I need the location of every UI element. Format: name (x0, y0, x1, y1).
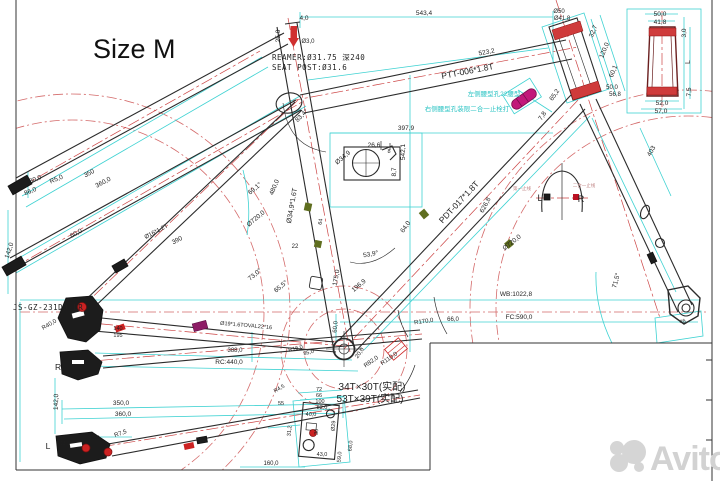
dim-label: 175,0 (332, 269, 342, 287)
dim-label: 53T×39T(实配) (337, 392, 404, 405)
dim-label: L (537, 193, 542, 203)
head-angle-arc (596, 272, 640, 386)
fork-boss (639, 204, 652, 220)
dim-label: 350 (83, 168, 96, 179)
chainstay-r-yoke (60, 350, 102, 380)
dim-label: R7,5 (114, 429, 129, 439)
dim-label: R5,0 (49, 174, 65, 186)
dim-label: 140 (113, 326, 122, 332)
dim-label: REAMER:Ø31.75 深240 (272, 53, 365, 62)
dim-label: 196,9 (351, 278, 368, 294)
dim-label: Ø720,0 (502, 233, 523, 252)
dim-label: 46 (679, 318, 686, 325)
dim-label: 7,5 (686, 87, 693, 96)
headtube-detail-tube (647, 27, 678, 96)
dim-label: 360,0 (115, 411, 132, 418)
avito-watermark-text: Avito (650, 440, 720, 478)
dim-label: 523,2 (478, 47, 496, 57)
dim-label: 82,0 (317, 405, 328, 411)
dim-label: Ø50 (553, 9, 565, 15)
red-bolt (104, 448, 112, 456)
dim-label: 403 (646, 144, 658, 157)
down-tube (353, 109, 585, 354)
headset-top-band (552, 21, 583, 40)
dim-label: Ø34,9 (334, 149, 352, 166)
avito-logo-icon (610, 454, 628, 472)
dim-label: 73,0° (246, 266, 263, 282)
magenta-fitting (192, 320, 208, 331)
dim-label: 20,0 (354, 346, 366, 360)
frame-layer (10, 0, 712, 481)
dim-label: 43,0 (317, 452, 328, 458)
seat-tube (277, 27, 334, 351)
dim-label: 85,0 (303, 349, 315, 358)
dim-label: Ø3,0 (301, 39, 315, 45)
dim-label: 二合一止线 (573, 182, 596, 189)
dim-label: 8,7 (391, 167, 398, 176)
dim-label: 64,0 (399, 220, 412, 235)
dim-label: 80,0 (88, 436, 100, 442)
dim-label: 55 (278, 401, 284, 407)
dropout-dim-box (655, 311, 703, 343)
dim-label: 65,2 (548, 88, 561, 103)
dim-label: R82,0 (363, 355, 380, 369)
dim-label: 390 (171, 235, 184, 246)
dim-label: 68,0 (348, 440, 355, 451)
dim-label: FC:590,0 (506, 314, 533, 321)
dim-label: Ø29 (331, 420, 338, 431)
avito-logo-icon (634, 462, 644, 472)
front-rim-circle (496, 116, 720, 481)
dim-label: 64 (318, 218, 325, 225)
dim-label: 53,9° (362, 249, 379, 260)
dim-label: 120,0 (598, 41, 611, 59)
dim-label: 41,8 (654, 19, 667, 26)
dim-label: R4,5 (273, 384, 286, 395)
page-title: Size M (93, 34, 176, 64)
dim-label: 626,8 (479, 196, 493, 214)
dim-label: 50,0 (606, 85, 618, 91)
dim-label: 195 (113, 333, 122, 339)
dim-label: 56,8 (609, 92, 621, 98)
dim-label: 34T×30T(实配) (339, 380, 406, 393)
chainstay-r-axis (80, 334, 422, 362)
dim-label: 142,0 (4, 241, 16, 259)
black-parts-layer (2, 175, 657, 464)
dim-label: 350,0 (113, 400, 130, 407)
dim-label: 13,5 (61, 435, 68, 446)
dim-label: L (46, 441, 51, 451)
dim-label: 66,0 (447, 317, 459, 323)
dim-label: 40,0 (306, 412, 317, 418)
dim-label: 22 (292, 244, 299, 250)
stay-b-cap (2, 256, 26, 276)
dim-label: 第一止线 (513, 185, 531, 192)
dim-label: R (578, 194, 585, 204)
dim-label: 142,0 (53, 393, 61, 410)
cad-drawing: Size M 4,0543,425,0Ø3,0REAMER:Ø31.75 深24… (0, 0, 720, 481)
dim-label: 57,0 (655, 108, 668, 115)
dim-label: 60,1 (608, 64, 619, 79)
dim-label: SEAT POST:Ø31.6 (272, 63, 347, 72)
dim-label: PDT-017*1.8T (437, 179, 481, 225)
stay-fitting (112, 259, 128, 273)
avito-watermark: Avito (610, 440, 720, 478)
dim-label: 388,0 (227, 348, 243, 354)
dim-label: 32,7 (588, 24, 599, 39)
dim-label: 30 (314, 429, 321, 436)
dim-label: 480,0 (268, 178, 281, 196)
dim-label: 160,0 (263, 461, 279, 467)
dim-label: 397,9 (398, 125, 415, 132)
seatpost-marker (291, 26, 298, 39)
seat-stay-axis (79, 100, 298, 310)
dim-label: 右侧腰型孔装限二合一止栓打 (425, 104, 510, 113)
lr-left-square (544, 194, 550, 200)
dim-label: WB:1022,8 (500, 291, 533, 298)
dim-label: 65,5° (272, 278, 289, 294)
dim-label: L (685, 60, 692, 64)
dim-label: 52,0 (656, 100, 669, 107)
dim-label: Ø34,9*1.6T (286, 187, 299, 224)
cad-screenshot-root: Size M 4,0543,425,0Ø3,0REAMER:Ø31.75 深24… (0, 0, 720, 481)
dim-label: Ø41,8 (554, 16, 571, 22)
dim-label: 59,0 (337, 451, 344, 462)
dim-label: 8 (387, 149, 390, 155)
dim-label: 71,5° (610, 272, 622, 289)
dim-label: 542,1 (400, 143, 407, 160)
dim-label: 左侧腰型孔22腰型 (468, 89, 521, 98)
dimension-labels-layer: 4,0543,425,0Ø3,0REAMER:Ø31.75 深240SEAT P… (4, 9, 693, 467)
dim-label: R (55, 362, 61, 372)
dim-label: R170,0 (414, 318, 435, 327)
dim-label: Ø16*1.2T (144, 223, 170, 241)
dim-label: 360,0 (94, 176, 112, 190)
dim-label: 25,0 (275, 29, 282, 42)
dim-label: R110,0 (380, 351, 399, 367)
dim-label: 543,4 (416, 10, 433, 17)
dim-label: RC:440,0 (215, 359, 243, 366)
dim-label: Ø19*1.6TOVAL22*16 (220, 321, 272, 332)
dim-label: 60,0 (333, 320, 340, 333)
dim-label: 50,0 (654, 11, 667, 18)
stay-a-axis (19, 51, 260, 188)
dim-label: 4,0 (299, 15, 308, 22)
rear-wheel-circle (0, 94, 290, 481)
fork-blade (580, 104, 678, 312)
red-bolt (82, 444, 90, 452)
dim-label: 26,6 (368, 142, 381, 149)
dim-label: JS-GZ-231DD-LR (13, 303, 83, 312)
dim-label: R16,0 (288, 344, 304, 354)
dim-label: R40,0 (41, 318, 58, 332)
red-chip-l (183, 442, 194, 450)
dim-label: 3,0 (681, 28, 688, 37)
avito-logo-icon (610, 441, 624, 455)
seat-stay (79, 102, 295, 306)
dim-label: 31,2 (287, 425, 294, 436)
